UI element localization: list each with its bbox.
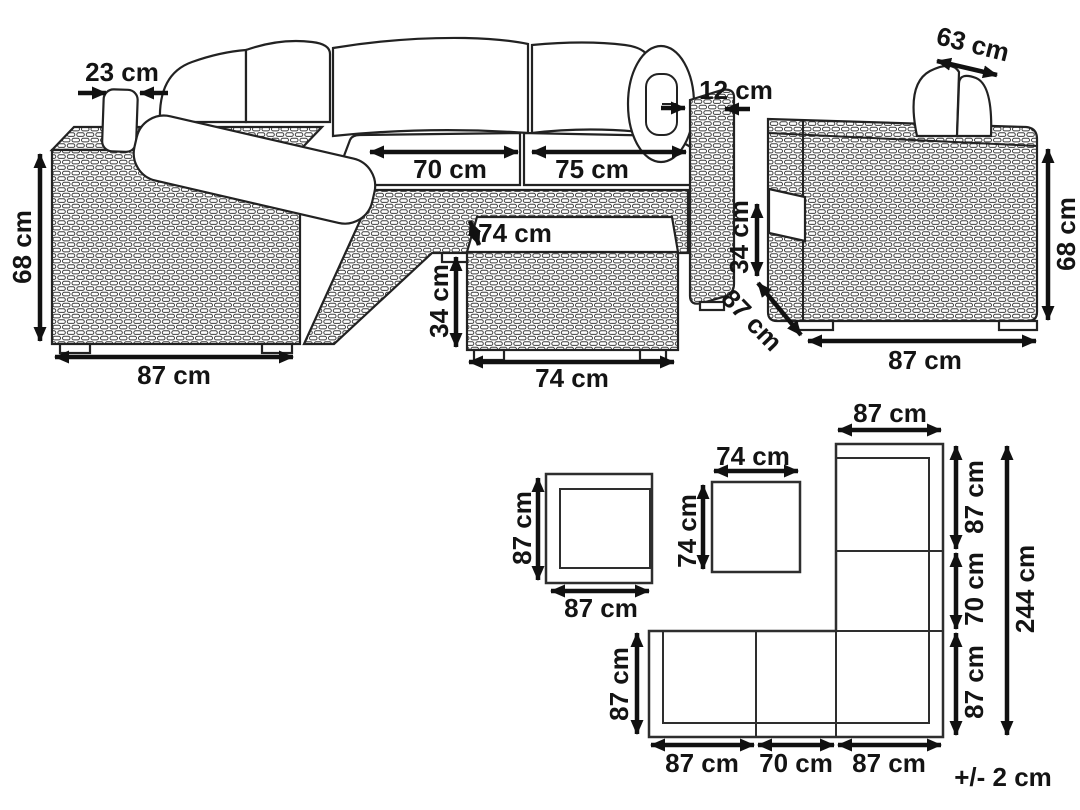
armchair-headrest-right	[957, 76, 991, 136]
dim-plan-armchair-depth: 87 cm	[507, 478, 538, 580]
dim-plan-sofa-bottom-left: 87 cm	[651, 745, 754, 778]
dim-label-sofa-height: 68 cm	[7, 210, 37, 284]
dim-sofa-pillow-thickness: 23 cm	[78, 57, 168, 93]
furniture-dimension-diagram: 23 cm 68 cm 87 cm 70 cm 75 cm 12 cm	[0, 0, 1080, 810]
plan-table: 74 cm 74 cm	[672, 441, 800, 572]
dim-plan-sofa-left: 87 cm	[604, 633, 637, 734]
sofa-back-cushion-middle	[333, 38, 528, 136]
dim-label-plan-armchair-depth: 87 cm	[507, 491, 537, 565]
dim-table-height: 34 cm	[424, 257, 456, 347]
dim-label-sofa-armrest-width: 87 cm	[137, 360, 211, 390]
dim-label-plan-sofa-right-upper: 87 cm	[959, 460, 989, 534]
dim-label-plan-table-depth: 74 cm	[672, 494, 702, 568]
table-front-face	[467, 252, 678, 350]
dim-plan-table-depth: 74 cm	[672, 485, 703, 569]
armchair-seat-wedge	[769, 189, 805, 241]
dim-plan-sofa-right-middle: 70 cm	[956, 552, 989, 629]
armchair-foot-right	[999, 321, 1037, 330]
dim-label-plan-armchair-width: 87 cm	[564, 593, 638, 623]
dim-label-armchair-width: 87 cm	[888, 345, 962, 375]
dim-label-sofa-pillow: 23 cm	[85, 57, 159, 87]
dim-label-plan-sofa-top: 87 cm	[853, 398, 927, 428]
dim-plan-sofa-top: 87 cm	[838, 398, 941, 430]
dim-label-plan-sofa-left: 87 cm	[604, 647, 634, 721]
dim-plan-sofa-right-upper: 87 cm	[956, 446, 989, 549]
sofa-back-cushion-left	[160, 50, 246, 122]
dim-label-armchair-headrest: 63 cm	[934, 21, 1013, 68]
dim-plan-sofa-bottom-middle: 70 cm	[758, 745, 834, 778]
armchair-3d-view: 63 cm 34 cm 87 cm 68 cm 87 cm	[716, 21, 1080, 375]
diagram-canvas: 23 cm 68 cm 87 cm 70 cm 75 cm 12 cm	[0, 0, 1080, 810]
dim-armchair-armrest-height: 34 cm	[724, 200, 757, 276]
dim-plan-table-width: 74 cm	[714, 441, 798, 471]
dim-label-table-width: 74 cm	[535, 363, 609, 393]
dim-label-sofa-seat-right: 75 cm	[555, 154, 629, 184]
dim-label-table-height: 34 cm	[424, 264, 454, 338]
dim-label-sofa-armrest-thickness: 12 cm	[699, 75, 773, 105]
dim-plan-armchair-width: 87 cm	[551, 591, 649, 623]
plan-sofa: 87 cm 87 cm 70 cm 87 cm 244 cm 87 cm 70 …	[604, 398, 1040, 778]
plan-armchair: 87 cm 87 cm	[507, 474, 652, 623]
dim-armchair-width: 87 cm	[808, 341, 1036, 375]
plan-armchair-outline	[546, 474, 652, 583]
table-foot-right	[640, 350, 666, 360]
dim-plan-sofa-right-lower: 87 cm	[956, 633, 989, 735]
dim-label-plan-sofa-total: 244 cm	[1010, 545, 1040, 633]
dim-table-depth: 74 cm	[470, 218, 552, 248]
dim-plan-sofa-total: 244 cm	[1007, 446, 1040, 735]
dim-armchair-height: 68 cm	[1048, 149, 1080, 320]
dim-plan-sofa-bottom-right: 87 cm	[838, 745, 941, 778]
dim-label-plan-sofa-right-lower: 87 cm	[959, 645, 989, 719]
armchair-body	[768, 119, 1037, 321]
sofa-left-armrest-foot-left	[60, 344, 90, 353]
sofa-small-pillow	[102, 89, 138, 152]
dim-label-plan-sofa-right-middle: 70 cm	[959, 552, 989, 626]
dim-sofa-height: 68 cm	[7, 154, 40, 341]
tolerance-note: +/- 2 cm	[954, 762, 1052, 792]
dim-label-plan-table-width: 74 cm	[716, 441, 790, 471]
dim-label-armchair-height: 68 cm	[1051, 197, 1080, 271]
dim-sofa-armrest-width: 87 cm	[55, 357, 293, 390]
sofa-left-armrest-foot-right	[262, 344, 292, 353]
table-foot-left	[474, 350, 504, 360]
dim-label-armchair-armrest-height: 34 cm	[724, 200, 754, 274]
dim-label-table-depth: 74 cm	[478, 218, 552, 248]
dim-label-sofa-seat-left: 70 cm	[413, 154, 487, 184]
plan-table-outline	[712, 482, 800, 572]
dim-label-plan-sofa-bottom-left: 87 cm	[665, 748, 739, 778]
dim-label-plan-sofa-bottom-right: 87 cm	[852, 748, 926, 778]
dim-label-plan-sofa-bottom-middle: 70 cm	[759, 748, 833, 778]
sofa-bolster-pillow	[628, 46, 694, 162]
sofa-back-cushion-corner	[246, 41, 330, 122]
dim-table-width: 74 cm	[469, 362, 674, 393]
armchair-foot-left	[797, 321, 833, 330]
armchair-headrest-left	[914, 66, 959, 136]
